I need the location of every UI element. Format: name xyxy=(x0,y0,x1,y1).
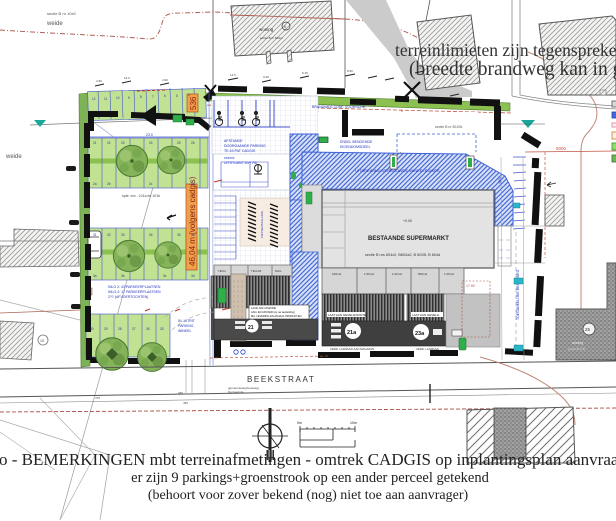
svg-text:485: 485 xyxy=(183,401,188,405)
svg-text:3d: 3d xyxy=(191,274,195,278)
svg-text:ENKEL BENOEMDE: ENKEL BENOEMDE xyxy=(340,140,373,144)
svg-text:LAAD- EN LOSZONE: LAAD- EN LOSZONE xyxy=(251,306,276,310)
svg-text:sectie B nr B100x: sectie B nr B100x xyxy=(435,125,463,129)
svg-text:LAAT AAN GEVELH.: LAAT AAN GEVELH. xyxy=(412,313,440,317)
svg-text:weide: weide xyxy=(5,154,22,160)
svg-text:MA. LEVERING EN AFHAAL PRODUKT: MA. LEVERING EN AFHAAL PRODUKTEN xyxy=(251,314,301,318)
svg-text:11: 11 xyxy=(104,97,108,101)
svg-text:9: 9 xyxy=(128,96,130,100)
svg-text:woning: woning xyxy=(259,27,274,32)
svg-text:24: 24 xyxy=(149,141,153,145)
svg-text:31: 31 xyxy=(93,233,97,237)
svg-text:VERD. LAADKAAI: VERD. LAADKAAI xyxy=(416,347,439,351)
svg-text:34: 34 xyxy=(149,233,153,237)
svg-text:500m2: 500m2 xyxy=(418,272,428,276)
svg-text:+0.00: +0.00 xyxy=(403,219,412,223)
svg-text:(behoort voor zover bekend (no: (behoort voor zover bekend (nog) niet to… xyxy=(148,488,469,503)
svg-text:sectie B nr B...: sectie B nr B... xyxy=(568,347,588,351)
svg-text:AFSTANDE: AFSTANDE xyxy=(224,139,243,143)
svg-text:sectie B nrs 604x2, B602a2, B: sectie B nrs 604x2, B602a2, B 602B, B 60… xyxy=(365,253,440,257)
svg-text:23: 23 xyxy=(121,141,125,145)
svg-text:478: 478 xyxy=(95,396,100,400)
svg-text:536: 536 xyxy=(189,96,198,110)
svg-text:33: 33 xyxy=(121,233,125,237)
svg-text:EIGENDOMSDEEL: EIGENDOMSDEEL xyxy=(340,145,371,149)
svg-text:25: 25 xyxy=(177,141,181,145)
svg-text:sectie B nr 10x0: sectie B nr 10x0 xyxy=(47,11,76,16)
svg-text:30: 30 xyxy=(90,327,94,331)
svg-text:12.5: 12.5 xyxy=(230,73,236,77)
svg-text:480: 480 xyxy=(178,391,183,395)
svg-text:spie: xxx - 101a en 101b: spie: xxx - 101a en 101b xyxy=(122,194,160,198)
svg-text:TE-43 PAT CADGIS: TE-43 PAT CADGIS xyxy=(224,149,256,153)
svg-text:BEEKSTRAAT: BEEKSTRAAT xyxy=(247,375,315,384)
svg-text:0m: 0m xyxy=(297,421,302,425)
svg-text:TECH: TECH xyxy=(218,269,226,273)
svg-text:29: 29 xyxy=(104,327,108,331)
svg-text:100m2: 100m2 xyxy=(332,272,342,276)
svg-text:25: 25 xyxy=(160,327,164,331)
svg-text:4500: 4500 xyxy=(498,177,502,184)
svg-text:er zijn 9 parkings+groenstrook: er zijn 9 parkings+groenstrook op een an… xyxy=(131,470,489,486)
svg-text:15: 15 xyxy=(40,339,44,343)
svg-text:6.15: 6.15 xyxy=(302,71,308,75)
svg-text:INLO 2: 43 PARKEERPLAATSEN: INLO 2: 43 PARKEERPLAATSEN xyxy=(108,285,161,289)
svg-text:8: 8 xyxy=(140,95,142,99)
svg-text:26: 26 xyxy=(146,327,150,331)
svg-text:23.0: 23.0 xyxy=(146,133,153,137)
svg-text:FIETSENSTALLING: FIETSENSTALLING xyxy=(260,210,264,238)
svg-text:36: 36 xyxy=(191,233,195,237)
svg-text:IN- UITRIT: IN- UITRIT xyxy=(178,319,196,323)
svg-text:TOEGANKELIJKE BRANDWEG: TOEGANKELIJKE BRANDWEG xyxy=(516,269,520,320)
svg-text:xxxxxx: xxxxxx xyxy=(224,156,235,160)
svg-text:46,04 m (volgens cadgis): 46,04 m (volgens cadgis) xyxy=(188,176,197,266)
svg-text:4.90: 4.90 xyxy=(96,79,102,83)
svg-text:TECH.B: TECH.B xyxy=(251,269,261,273)
svg-text:2c: 2c xyxy=(149,182,153,186)
svg-text:23a: 23a xyxy=(415,331,425,337)
svg-text:22: 22 xyxy=(107,141,111,145)
svg-text:2d: 2d xyxy=(191,182,195,186)
svg-text:o - BEMERKINGEN mbt terreinafm: o - BEMERKINGEN mbt terreinafmetingen - … xyxy=(0,450,616,469)
svg-text:6: 6 xyxy=(164,94,166,98)
svg-text:4.90: 4.90 xyxy=(162,78,168,82)
svg-text:25: 25 xyxy=(585,327,591,332)
svg-text:INLO-2: 17 PARKEERPLAATSEN: INLO-2: 17 PARKEERPLAATSEN xyxy=(108,290,161,294)
svg-text:WINKEL: WINKEL xyxy=(178,329,191,333)
svg-text:4: 4 xyxy=(188,93,190,97)
svg-text:21a: 21a xyxy=(347,330,357,336)
svg-text:10: 10 xyxy=(116,96,120,100)
svg-text:2a: 2a xyxy=(93,182,97,186)
svg-text:MAG: MAG xyxy=(275,269,281,273)
svg-text:12: 12 xyxy=(92,97,96,101)
svg-text:terreinlimieten zijn tegenspre: terreinlimieten zijn tegensprekelijk xyxy=(395,40,616,60)
svg-text:5: 5 xyxy=(284,25,286,29)
svg-text:21: 21 xyxy=(248,325,254,331)
svg-text:8.90: 8.90 xyxy=(347,69,353,73)
svg-text:10m: 10m xyxy=(350,421,357,425)
svg-text:5000: 5000 xyxy=(556,146,567,151)
svg-text:3b: 3b xyxy=(121,274,125,278)
svg-text:17.00: 17.00 xyxy=(466,284,475,288)
svg-text:2b: 2b xyxy=(107,182,111,186)
svg-text:21: 21 xyxy=(93,141,97,145)
svg-text:14.0: 14.0 xyxy=(124,76,130,80)
svg-text:3.20: 3.20 xyxy=(263,75,269,79)
svg-text:(breedte brandweg kan in gedra: (breedte brandweg kan in gedrang komen) xyxy=(409,59,616,80)
svg-text:woning: woning xyxy=(572,341,583,345)
svg-text:DOORGAANDE PARKING: DOORGAANDE PARKING xyxy=(224,144,266,148)
svg-text:LAAT AAN GEVELHOOGTE: LAAT AAN GEVELHOOGTE xyxy=(328,313,366,317)
svg-text:UITSTUANT 50/7 R8: UITSTUANT 50/7 R8 xyxy=(224,161,257,165)
svg-text:7: 7 xyxy=(152,95,154,99)
svg-text:5: 5 xyxy=(176,94,178,98)
svg-text:27: 27 xyxy=(132,327,136,331)
svg-text:35: 35 xyxy=(177,233,181,237)
svg-text:BESTAANDE SUPERMARKT: BESTAANDE SUPERMARKT xyxy=(368,236,449,242)
svg-text:1.00m2: 1.00m2 xyxy=(392,272,402,276)
svg-text:28: 28 xyxy=(118,327,122,331)
svg-text:UITBREIDING/VERBOUWDE WINKELRU: UITBREIDING/VERBOUWDE WINKELRUIMTE xyxy=(355,168,440,173)
svg-text:PARKING: PARKING xyxy=(178,324,194,328)
svg-text:32: 32 xyxy=(107,233,111,237)
svg-text:3c: 3c xyxy=(163,274,167,278)
svg-text:sectie B nr 604m: sectie B nr 604m xyxy=(260,36,283,40)
svg-text:1.50m2: 1.50m2 xyxy=(364,272,374,276)
svg-text:9.2: 9.2 xyxy=(417,66,422,70)
svg-text:1.00m2: 1.00m2 xyxy=(444,272,454,276)
svg-text:BRANDWEG CONF. VOORSCHR.: BRANDWEG CONF. VOORSCHR. xyxy=(312,105,366,109)
svg-text:2?? (AFVOERTOCHTEN): 2?? (AFVOERTOCHTEN) xyxy=(108,295,148,299)
svg-text:AAN- EN AFVOER (op uw aanleidi: AAN- EN AFVOER (op uw aanleiding) xyxy=(251,310,295,314)
svg-text:26: 26 xyxy=(191,141,195,145)
svg-text:weide: weide xyxy=(46,21,63,27)
svg-text:3a: 3a xyxy=(93,274,97,278)
svg-text:VERD. LAADKAAI AAN MAGAZIJN: VERD. LAADKAAI AAN MAGAZIJN xyxy=(330,347,374,351)
